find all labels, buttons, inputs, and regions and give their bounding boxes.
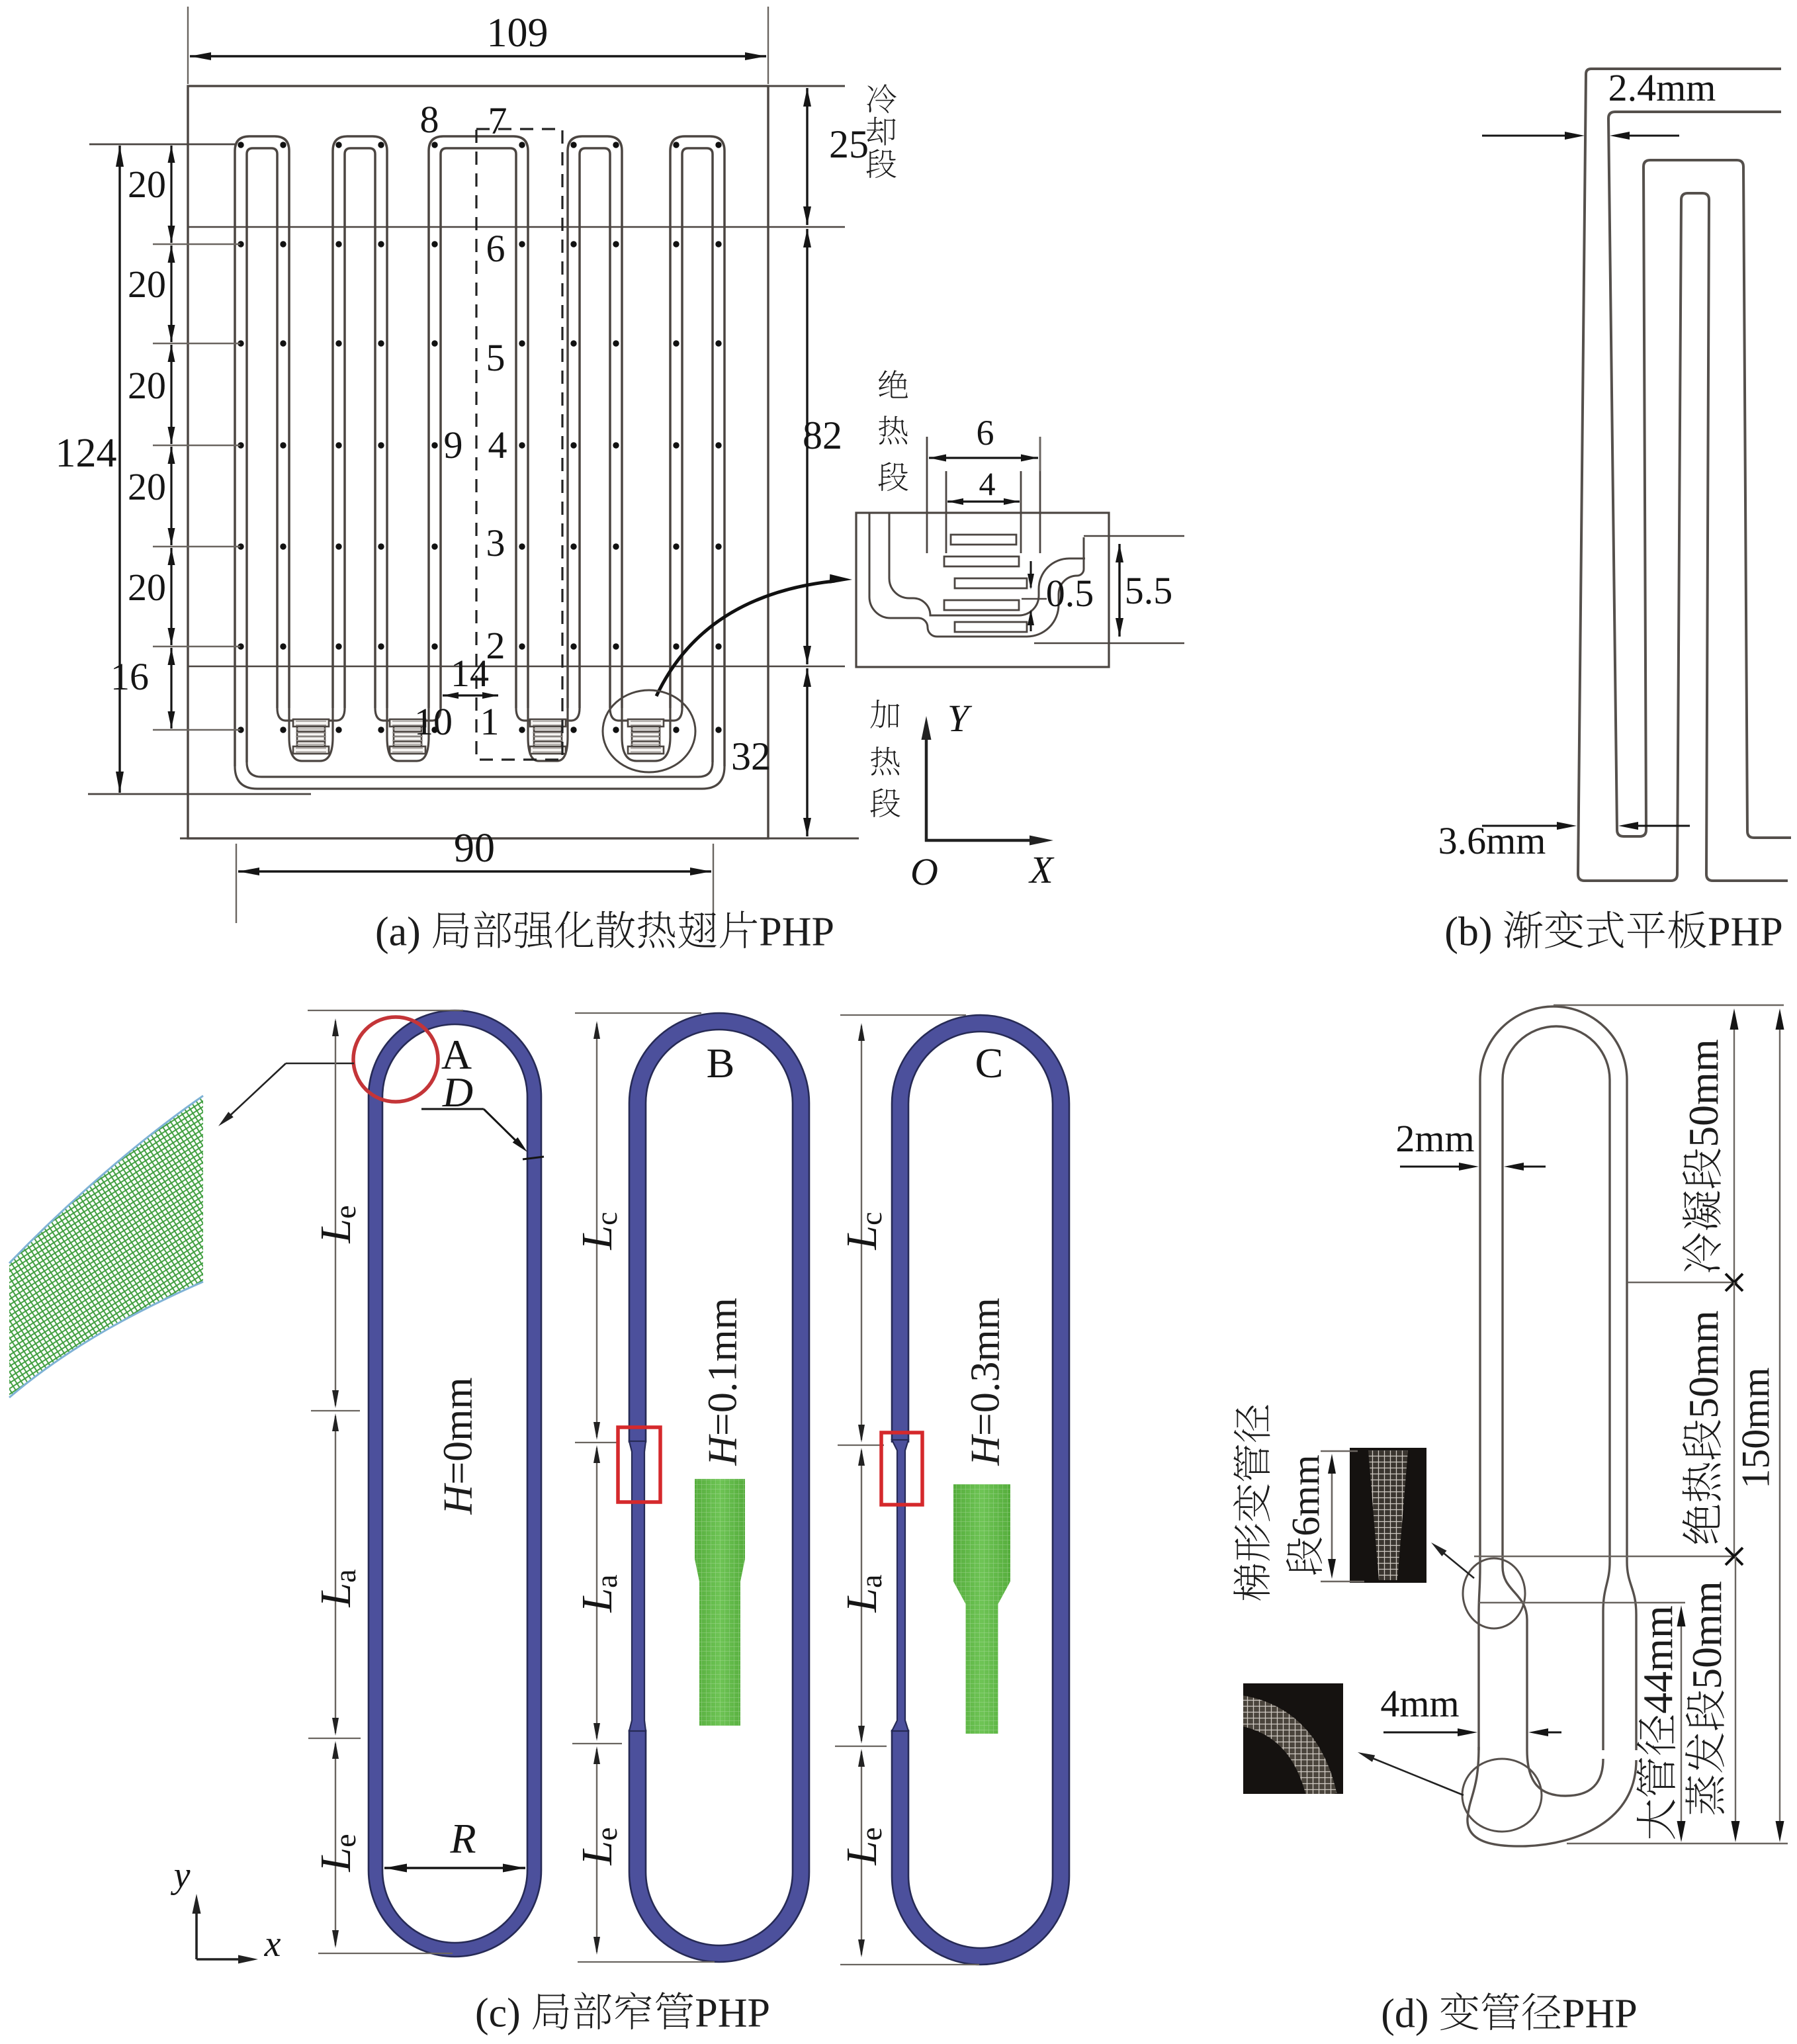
svg-text:20: 20 [128, 566, 166, 609]
svg-text:109: 109 [487, 11, 548, 56]
svg-text:Lc: Lc [838, 1212, 888, 1250]
svg-text:O: O [910, 850, 938, 893]
svg-text:4: 4 [488, 423, 507, 467]
svg-text:=0.3mm: =0.3mm [963, 1298, 1008, 1436]
svg-text:(c): (c) [475, 1990, 521, 2035]
svg-text:82: 82 [803, 414, 842, 457]
svg-text:x: x [264, 1924, 281, 1965]
svg-text:Le: Le [573, 1827, 623, 1865]
svg-text:50mm: 50mm [1680, 1039, 1727, 1147]
svg-text:Y: Y [947, 697, 973, 740]
svg-text:1: 1 [480, 700, 500, 743]
svg-text:X: X [1028, 848, 1055, 891]
svg-text:=0.1mm: =0.1mm [700, 1298, 745, 1436]
svg-text:PHP: PHP [759, 909, 834, 954]
svg-text:(b): (b) [1444, 909, 1492, 954]
svg-text:8: 8 [420, 98, 439, 141]
svg-text:(a): (a) [375, 909, 421, 954]
svg-text:10: 10 [414, 700, 453, 743]
svg-text:90: 90 [454, 826, 495, 871]
svg-text:124: 124 [56, 431, 117, 476]
svg-text:5: 5 [486, 336, 505, 379]
svg-text:PHP: PHP [695, 1990, 770, 2035]
svg-text:9: 9 [444, 423, 463, 467]
svg-text:Le: Le [312, 1834, 362, 1872]
svg-text:3: 3 [486, 521, 505, 564]
svg-text:150mm: 150mm [1734, 1367, 1778, 1488]
svg-text:5.5: 5.5 [1125, 569, 1173, 612]
svg-text:(d): (d) [1381, 1991, 1428, 2036]
svg-text:3.6mm: 3.6mm [1438, 819, 1546, 862]
svg-text:20: 20 [128, 263, 166, 306]
svg-text:50mm: 50mm [1683, 1581, 1730, 1689]
svg-text:C: C [975, 1040, 1004, 1087]
svg-text:20: 20 [128, 163, 166, 206]
svg-text:20: 20 [128, 465, 166, 508]
svg-text:y: y [171, 1855, 191, 1896]
svg-text:16: 16 [110, 655, 149, 698]
svg-text:2.4mm: 2.4mm [1608, 66, 1716, 109]
svg-text:2: 2 [486, 624, 505, 667]
svg-text:PHP: PHP [1708, 909, 1783, 954]
svg-text:25: 25 [829, 122, 869, 166]
svg-text:Le: Le [838, 1827, 888, 1865]
svg-text:La: La [312, 1569, 362, 1607]
svg-text:14: 14 [451, 652, 489, 695]
svg-text:0.5: 0.5 [1046, 572, 1094, 615]
svg-text:4: 4 [979, 465, 996, 502]
svg-text:7: 7 [488, 99, 507, 142]
svg-text:44mm: 44mm [1634, 1605, 1681, 1714]
svg-text:La: La [838, 1574, 888, 1613]
svg-text:PHP: PHP [1562, 1991, 1638, 2036]
svg-text:50mm: 50mm [1680, 1310, 1727, 1419]
svg-text:La: La [573, 1574, 623, 1613]
svg-text:20: 20 [128, 364, 166, 407]
svg-text:6: 6 [977, 413, 994, 453]
svg-text:6mm: 6mm [1284, 1454, 1328, 1536]
svg-text:=0mm: =0mm [435, 1377, 480, 1484]
svg-text:B: B [707, 1040, 735, 1087]
svg-text:Le: Le [312, 1205, 362, 1243]
svg-text:32: 32 [731, 734, 771, 778]
svg-text:R: R [449, 1815, 476, 1862]
svg-text:4mm: 4mm [1380, 1682, 1459, 1725]
svg-text:H: H [700, 1434, 745, 1466]
svg-text:H: H [435, 1483, 480, 1515]
svg-text:H: H [963, 1434, 1008, 1466]
svg-text:Lc: Lc [573, 1212, 623, 1250]
svg-text:6: 6 [486, 227, 505, 270]
svg-text:2mm: 2mm [1395, 1117, 1474, 1160]
